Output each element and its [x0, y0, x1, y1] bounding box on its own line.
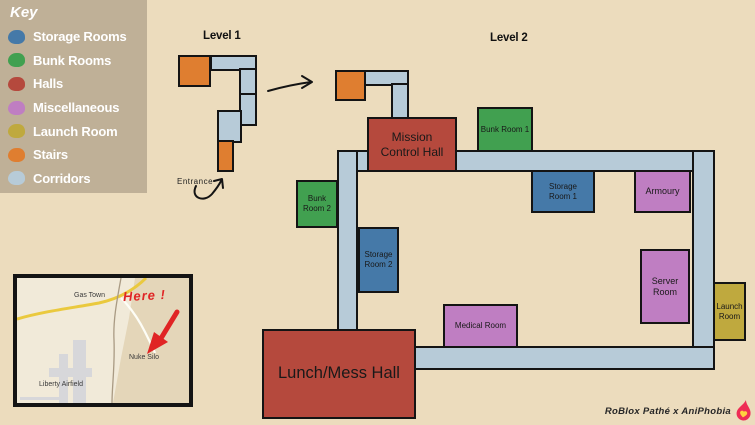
room-storage-room-1: Storage Room 1: [531, 170, 595, 213]
facility-map: Key Storage Rooms Bunk Rooms Halls Misce…: [0, 0, 755, 425]
liberty-airfield-label: Liberty Airfield: [39, 381, 83, 388]
room-label: Bunk Room 2: [302, 194, 332, 213]
level1-title: Level 1: [203, 30, 241, 42]
stairs-swatch: [8, 148, 25, 162]
flame-icon: [734, 399, 754, 423]
legend-item-miscellaneous: Miscellaneous: [8, 96, 147, 120]
gas-town-label: Gas Town: [74, 292, 105, 299]
bunk-rooms-swatch: [8, 53, 25, 67]
room-server-room: Server Room: [640, 249, 690, 324]
room-lunch-mess-hall: Lunch/Mess Hall: [262, 329, 416, 419]
room-label: Launch Room: [715, 302, 744, 321]
room-label: Armoury: [645, 186, 679, 197]
legend-item-label: Halls: [33, 76, 63, 91]
level1-corridor-right-upper: [239, 68, 257, 96]
nuke-silo-label: Nuke Silo: [129, 354, 159, 361]
room-storage-room-2: Storage Room 2: [358, 227, 399, 293]
room-label: Mission Control Hall: [377, 130, 447, 159]
room-bunk-room-2: Bunk Room 2: [296, 180, 338, 228]
level2-corridor-left: [337, 150, 358, 332]
legend-panel: Key Storage Rooms Bunk Rooms Halls Misce…: [0, 0, 147, 193]
room-label: Bunk Room 1: [481, 125, 529, 135]
room-label: Storage Room 2: [360, 250, 397, 269]
level2-corridor-bottom: [413, 346, 715, 370]
legend-item-label: Miscellaneous: [33, 100, 119, 115]
legend-item-label: Bunk Rooms: [33, 53, 111, 68]
miscellaneous-swatch: [8, 101, 25, 115]
airfield-runways: [20, 340, 92, 403]
halls-swatch: [8, 77, 25, 91]
level1-entrance-stairs: [217, 140, 234, 172]
room-label: Medical Room: [455, 321, 506, 331]
room-launch-room: Launch Room: [713, 282, 746, 341]
legend-item-launch-room: Launch Room: [8, 119, 147, 143]
level1-to-level2-arrow: [266, 74, 318, 96]
corridors-swatch: [8, 171, 25, 185]
legend-item-label: Storage Rooms: [33, 29, 126, 44]
legend-item-stairs: Stairs: [8, 143, 147, 167]
location-map-inset: Gas Town Nuke Silo Liberty Airfield Here…: [13, 274, 193, 407]
level2-corridor-stairs-vertical: [391, 83, 409, 120]
legend-item-label: Corridors: [33, 171, 90, 186]
legend-item-bunk-rooms: Bunk Rooms: [8, 49, 147, 73]
legend-item-label: Launch Room: [33, 124, 117, 139]
room-label: Lunch/Mess Hall: [278, 364, 400, 384]
legend-item-corridors: Corridors: [8, 167, 147, 191]
legend-items: Storage Rooms Bunk Rooms Halls Miscellan…: [8, 25, 147, 190]
room-label: Storage Room 1: [542, 182, 584, 201]
level2-corridor-right: [692, 150, 715, 370]
here-annotation: Here !: [123, 287, 167, 304]
room-medical-room: Medical Room: [443, 304, 518, 348]
level1-corridor-step: [217, 110, 242, 143]
room-mission-control-hall: Mission Control Hall: [367, 117, 457, 172]
room-label: Server Room: [648, 276, 682, 298]
launch-room-swatch: [8, 124, 25, 138]
storage-rooms-swatch: [8, 30, 25, 44]
legend-item-halls: Halls: [8, 72, 147, 96]
room-bunk-room-1: Bunk Room 1: [477, 107, 533, 152]
legend-title: Key: [10, 4, 38, 21]
level2-stairs: [335, 70, 366, 101]
level1-stairs: [178, 55, 211, 87]
legend-item-storage-rooms: Storage Rooms: [8, 25, 147, 49]
room-armoury: Armoury: [634, 170, 691, 213]
level2-title: Level 2: [490, 32, 528, 44]
credits-text: RoBlox Pathé x AniPhobia: [593, 406, 731, 417]
legend-item-label: Stairs: [33, 147, 68, 162]
entrance-arrow: [188, 174, 233, 204]
